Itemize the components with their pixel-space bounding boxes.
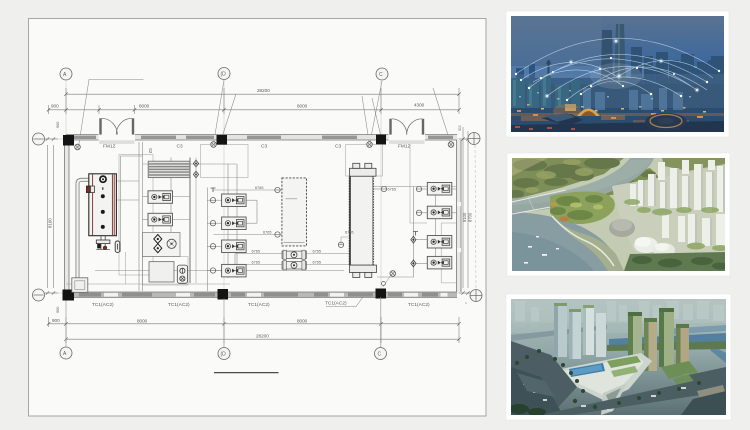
svg-text:C: C bbox=[378, 352, 382, 358]
svg-text:FM1Z: FM1Z bbox=[103, 144, 116, 150]
svg-text:6765: 6765 bbox=[255, 186, 263, 190]
svg-text:28200: 28200 bbox=[257, 88, 270, 93]
svg-text:6765: 6765 bbox=[313, 261, 321, 265]
svg-text:TC1(AC2): TC1(AC2) bbox=[92, 302, 114, 308]
svg-text:8000: 8000 bbox=[297, 104, 308, 109]
svg-text:6765: 6765 bbox=[252, 250, 260, 254]
svg-text:6765: 6765 bbox=[263, 231, 271, 235]
svg-text:900: 900 bbox=[52, 318, 60, 323]
svg-text:8700: 8700 bbox=[468, 212, 473, 222]
svg-text:900: 900 bbox=[56, 307, 60, 313]
svg-text:TC1(AC2): TC1(AC2) bbox=[408, 302, 430, 308]
svg-text:6765: 6765 bbox=[388, 188, 396, 192]
svg-text:C3: C3 bbox=[261, 144, 267, 150]
svg-text:8100: 8100 bbox=[48, 218, 53, 228]
svg-text:900: 900 bbox=[51, 104, 59, 109]
svg-text:6765: 6765 bbox=[345, 231, 353, 235]
svg-text:4300: 4300 bbox=[414, 103, 425, 108]
svg-text:C3: C3 bbox=[177, 144, 183, 150]
svg-text:TC1(AC2): TC1(AC2) bbox=[325, 301, 347, 307]
svg-text:TC1(AC2): TC1(AC2) bbox=[248, 302, 270, 308]
svg-text:=: = bbox=[465, 301, 467, 305]
svg-text:(D: (D bbox=[221, 72, 227, 78]
svg-text:28200: 28200 bbox=[256, 334, 269, 339]
svg-text:8000: 8000 bbox=[297, 319, 308, 324]
svg-text:C3: C3 bbox=[335, 144, 341, 150]
svg-text:8000: 8000 bbox=[137, 319, 148, 324]
svg-text:900: 900 bbox=[56, 122, 60, 128]
svg-text:TC1(AC2): TC1(AC2) bbox=[168, 302, 190, 308]
svg-text:FM1Z: FM1Z bbox=[398, 144, 411, 150]
svg-text:8000: 8000 bbox=[139, 104, 150, 109]
svg-text:S2: S2 bbox=[148, 148, 153, 154]
svg-text:300: 300 bbox=[458, 125, 462, 131]
svg-text:6765: 6765 bbox=[313, 250, 321, 254]
svg-text:8100: 8100 bbox=[462, 212, 467, 222]
svg-text:6765: 6765 bbox=[252, 261, 260, 265]
svg-text:C: C bbox=[379, 72, 383, 78]
svg-text:(D: (D bbox=[221, 352, 227, 358]
